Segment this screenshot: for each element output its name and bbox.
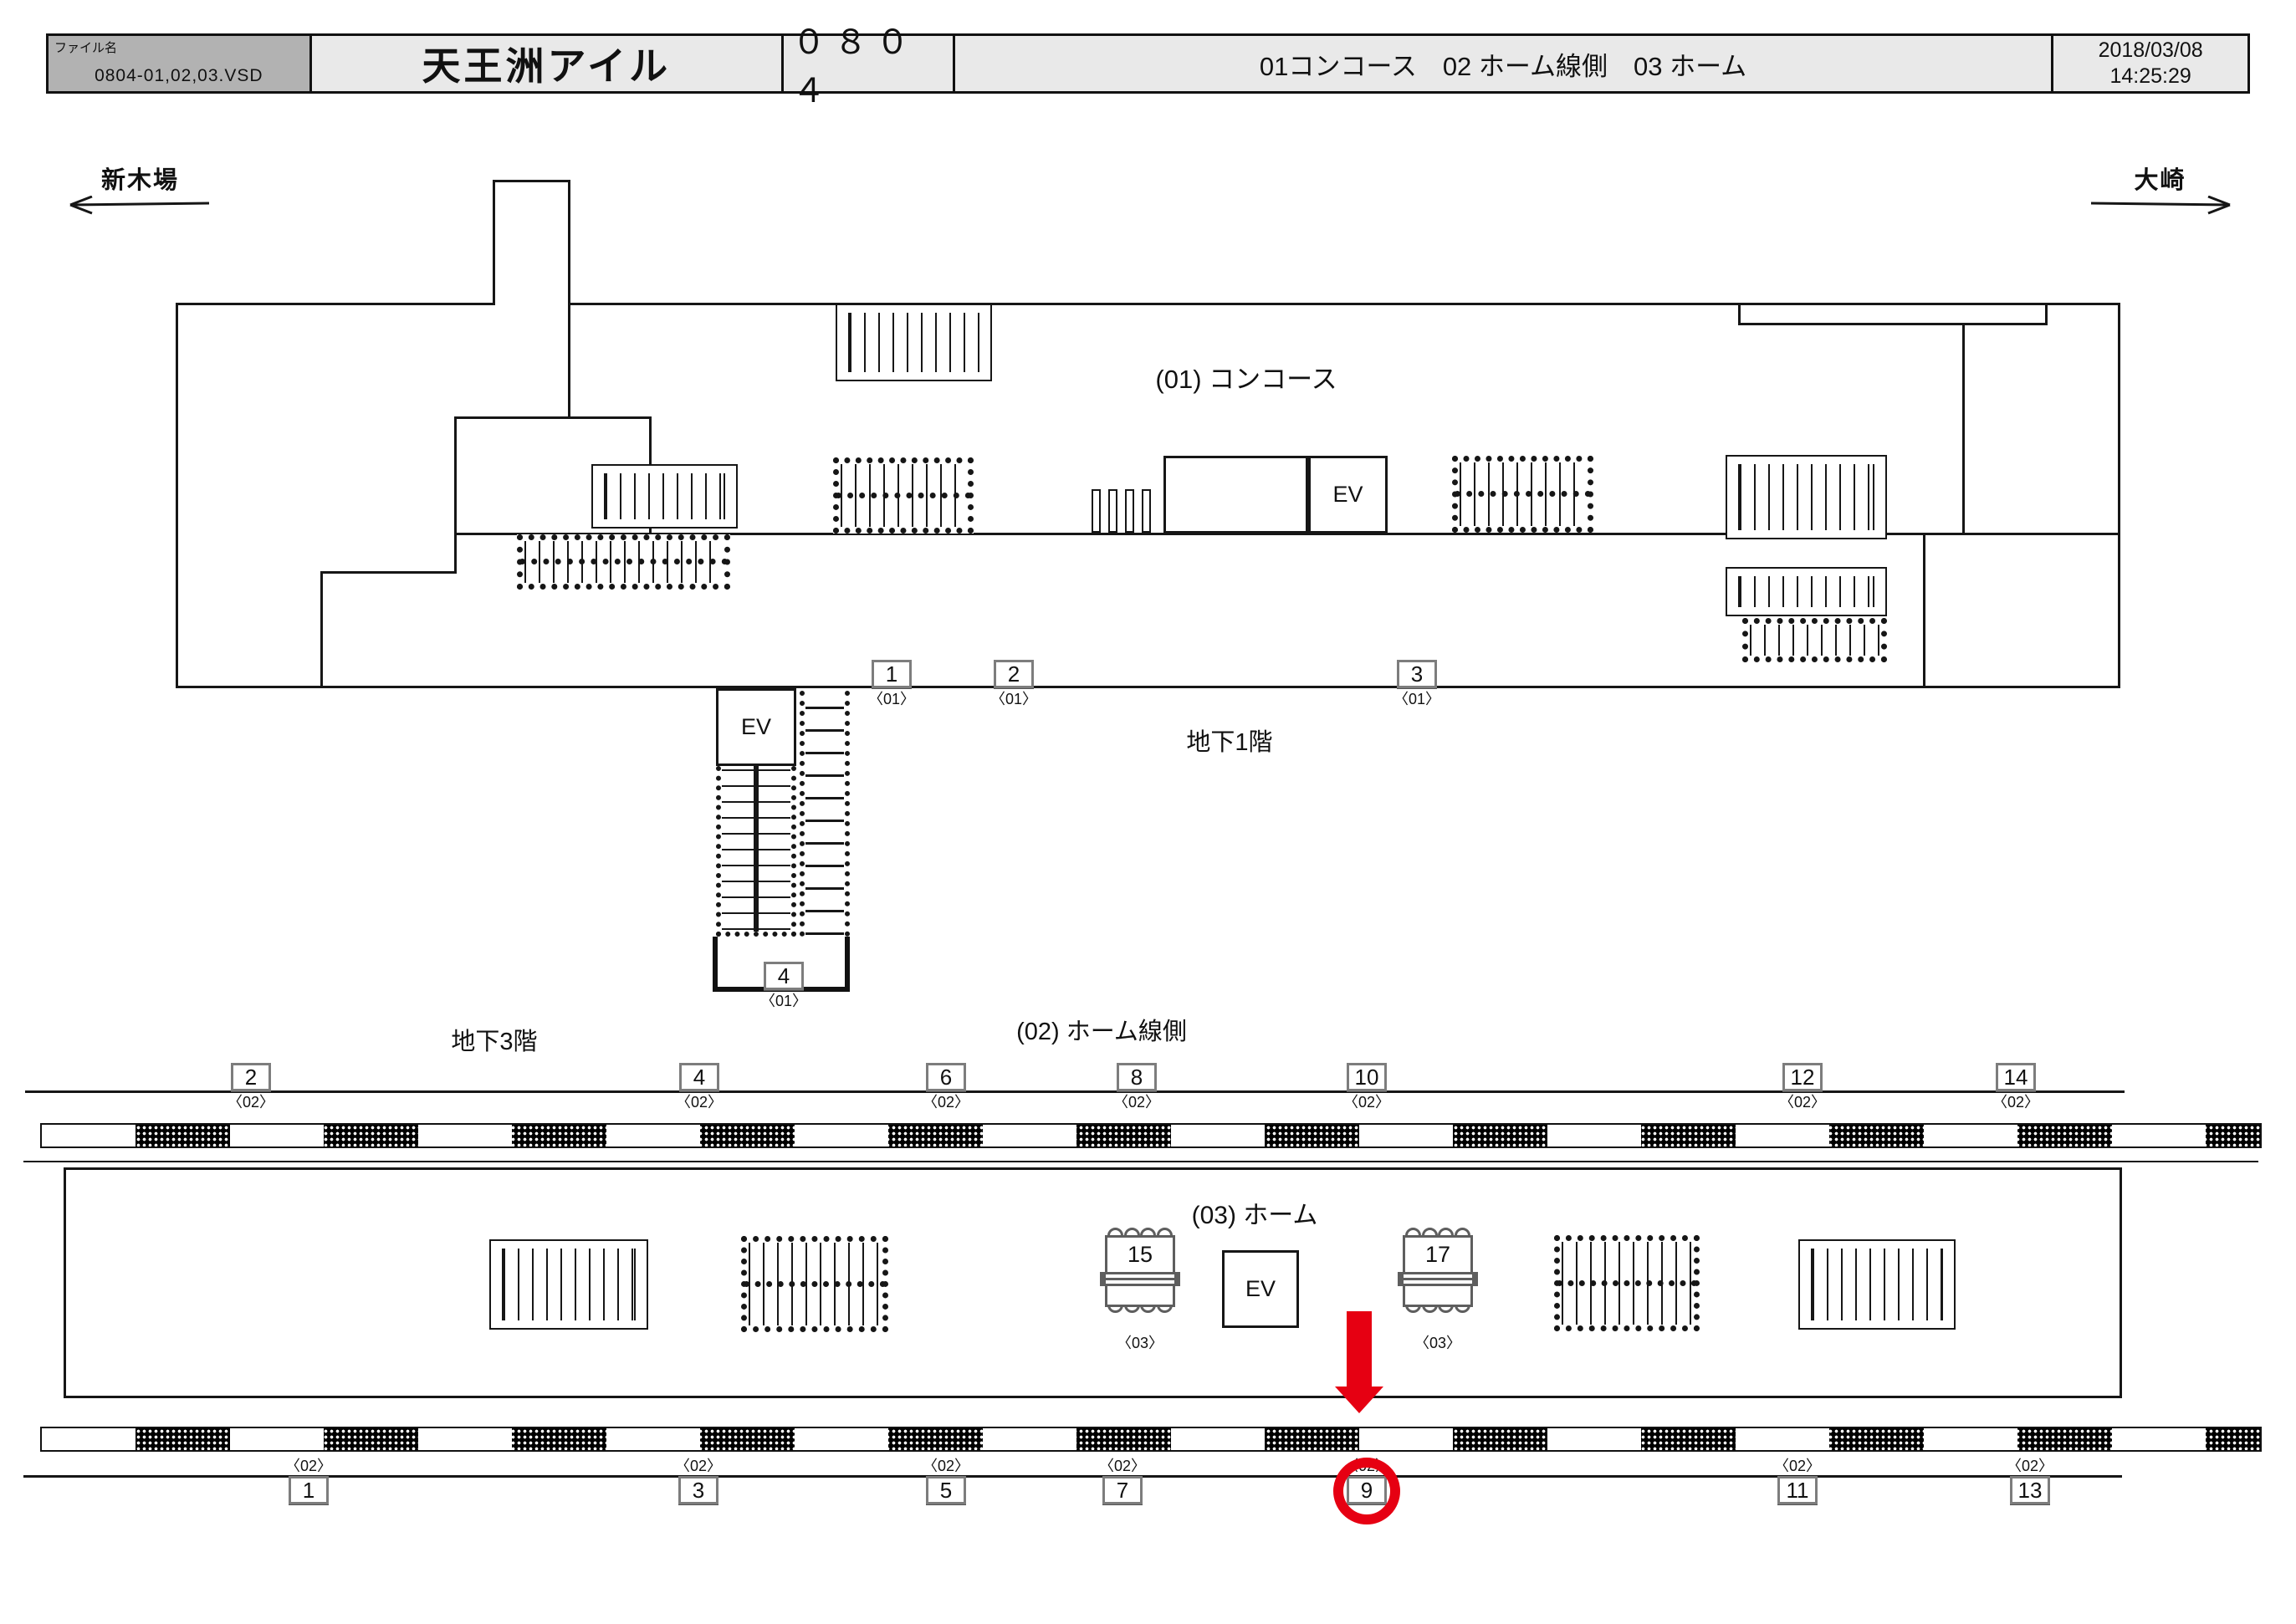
position-caption: 〈02〉 xyxy=(676,1093,723,1111)
track-band xyxy=(40,1123,2262,1148)
ad-position: 8 〈02〉 xyxy=(1110,1063,1163,1111)
elevator-box: EV xyxy=(1308,456,1388,534)
position-number: 1 xyxy=(289,1476,329,1504)
file-name-label: ファイル名 xyxy=(54,38,117,56)
ad-position: 6 〈02〉 xyxy=(919,1063,973,1111)
escalator-icon xyxy=(517,534,730,590)
position-number: 12 xyxy=(1782,1063,1823,1091)
position-caption: 〈02〉 xyxy=(675,1457,722,1475)
equipment-room xyxy=(1163,456,1308,534)
stairs-down-icon xyxy=(800,691,850,937)
position-caption: 〈01〉 xyxy=(868,690,915,708)
position-caption: 〈02〉 xyxy=(285,1457,332,1475)
position-number: 8 xyxy=(1117,1063,1157,1091)
ad-position: 〈02〉 7 xyxy=(1096,1457,1149,1504)
file-name-cell: ファイル名 0804-01,02,03.VSD xyxy=(49,36,312,91)
elevator-box: EV xyxy=(716,688,796,766)
wall xyxy=(454,416,457,571)
ad-position: 10 〈02〉 xyxy=(1340,1063,1393,1111)
section-list: 01コンコース 02 ホーム線側 03 ホーム xyxy=(955,36,2053,91)
ticket-gate-icon xyxy=(1092,489,1101,533)
highlight-circle-icon xyxy=(1333,1458,1400,1524)
hanging-sign: 15 xyxy=(1105,1228,1175,1315)
position-caption: 〈01〉 xyxy=(1393,690,1440,708)
position-number: 6 xyxy=(926,1063,966,1091)
ad-position: 1 〈01〉 xyxy=(865,660,918,708)
position-number: 3 xyxy=(1397,660,1437,688)
position-number: 1 xyxy=(872,660,912,688)
position-number: 11 xyxy=(1777,1476,1818,1504)
escalator-icon xyxy=(1742,618,1887,662)
direction-right: 大崎 xyxy=(2087,161,2233,216)
station-code: ０８０４ xyxy=(784,36,955,91)
position-caption: 〈03〉 xyxy=(1098,1331,1182,1353)
datetime-cell: 2018/03/08 14:25:29 xyxy=(2053,36,2247,91)
escalator-down-icon xyxy=(716,766,796,937)
concourse-shaft-top xyxy=(493,180,570,305)
ad-position: 〈02〉 11 xyxy=(1771,1457,1824,1504)
position-caption: 〈03〉 xyxy=(1396,1331,1480,1353)
ticket-gate-icon xyxy=(1108,489,1117,533)
direction-right-label: 大崎 xyxy=(2087,161,2233,196)
escalator-icon xyxy=(1452,456,1593,533)
stairs-icon xyxy=(1726,567,1887,616)
wall xyxy=(568,304,570,416)
file-name-value: 0804-01,02,03.VSD xyxy=(95,66,263,86)
wall xyxy=(1962,325,1965,534)
escalator-icon xyxy=(1554,1235,1700,1331)
sign-mount-bar xyxy=(1398,1272,1478,1286)
position-caption: 〈01〉 xyxy=(990,690,1037,708)
ad-position: 〈02〉 5 xyxy=(919,1457,973,1504)
wall xyxy=(1923,533,1925,688)
elevator-box: EV xyxy=(1222,1250,1299,1328)
position-number: 3 xyxy=(678,1476,718,1504)
stairs-icon xyxy=(489,1239,648,1330)
track-band xyxy=(40,1427,2262,1452)
position-number: 15 xyxy=(1107,1238,1173,1268)
position-number: 2 xyxy=(231,1063,271,1091)
ad-position: 12 〈02〉 xyxy=(1776,1063,1829,1111)
floor-label-b1: 地下1階 xyxy=(1121,723,1338,758)
area-label-platform: (03) ホーム xyxy=(1138,1194,1372,1231)
position-caption: 〈02〉 xyxy=(2007,1457,2053,1475)
concourse-room-topright xyxy=(1738,303,2048,325)
position-number: 13 xyxy=(2010,1476,2050,1504)
position-number: 17 xyxy=(1405,1238,1470,1268)
title-block: ファイル名 0804-01,02,03.VSD 天王洲アイル ０８０４ 01コン… xyxy=(46,33,2250,94)
position-number: 4 xyxy=(764,962,804,990)
highlight-arrow-shaft xyxy=(1347,1311,1372,1388)
area-label-concourse: (01) コンコース xyxy=(1112,358,1380,396)
floor-label-b3: 地下3階 xyxy=(394,1022,595,1057)
stairs-icon xyxy=(591,464,738,529)
sign-mount-bar xyxy=(1100,1272,1180,1286)
ad-position: 2 〈01〉 xyxy=(987,660,1041,708)
left-arrow-icon xyxy=(67,196,213,216)
ad-position: 3 〈01〉 xyxy=(1390,660,1444,708)
position-number: 4 xyxy=(679,1063,719,1091)
position-caption: 〈02〉 xyxy=(1774,1457,1821,1475)
ad-position: 4 〈02〉 xyxy=(672,1063,726,1111)
position-caption: 〈02〉 xyxy=(923,1093,969,1111)
direction-left-label: 新木場 xyxy=(67,161,213,196)
position-caption: 〈02〉 xyxy=(923,1457,969,1475)
ad-position: 〈02〉 3 xyxy=(672,1457,725,1504)
ad-position: 14 〈02〉 xyxy=(1989,1063,2043,1111)
position-number: 2 xyxy=(994,660,1034,688)
position-caption: 〈02〉 xyxy=(1779,1093,1826,1111)
station-floorplan-sheet: ファイル名 0804-01,02,03.VSD 天王洲アイル ０８０４ 01コン… xyxy=(0,0,2296,1624)
ad-position: 2 〈02〉 xyxy=(224,1063,278,1111)
position-number: 14 xyxy=(1996,1063,2036,1091)
ad-position: 〈02〉 1 xyxy=(282,1457,335,1504)
ticket-gate-icon xyxy=(1142,489,1151,533)
position-caption: 〈02〉 xyxy=(1343,1093,1390,1111)
stairs-icon xyxy=(1798,1239,1956,1330)
wall xyxy=(320,571,323,688)
sign-body: 17 xyxy=(1403,1235,1473,1307)
escalator-icon xyxy=(833,457,974,534)
position-caption: 〈02〉 xyxy=(1113,1093,1160,1111)
wall xyxy=(454,416,652,419)
time-value: 14:25:29 xyxy=(2109,64,2191,89)
ticket-gate-icon xyxy=(1125,489,1134,533)
direction-left: 新木場 xyxy=(67,161,213,216)
position-caption: 〈01〉 xyxy=(760,992,807,1010)
highlight-arrow-icon xyxy=(1335,1387,1383,1413)
position-caption: 〈02〉 xyxy=(1992,1093,2039,1111)
ad-position: 〈02〉 13 xyxy=(2003,1457,2057,1504)
ad-position: 4 〈01〉 xyxy=(757,962,811,1010)
date-value: 2018/03/08 xyxy=(2099,38,2203,64)
stairs-icon xyxy=(836,304,992,381)
hanging-sign: 17 xyxy=(1403,1228,1473,1315)
area-label-lineside: (02) ホーム線側 xyxy=(951,1012,1252,1047)
escalator-icon xyxy=(741,1236,888,1332)
station-name: 天王洲アイル xyxy=(312,36,784,91)
position-caption: 〈02〉 xyxy=(1099,1457,1146,1475)
right-arrow-icon xyxy=(2087,196,2233,216)
position-caption: 〈02〉 xyxy=(228,1093,274,1111)
stairs-icon xyxy=(1726,455,1887,539)
position-number: 7 xyxy=(1102,1476,1143,1504)
platform-edge-line xyxy=(23,1161,2258,1162)
wall xyxy=(320,571,457,574)
sign-body: 15 xyxy=(1105,1235,1175,1307)
position-number: 10 xyxy=(1347,1063,1387,1091)
position-number: 5 xyxy=(926,1476,966,1504)
